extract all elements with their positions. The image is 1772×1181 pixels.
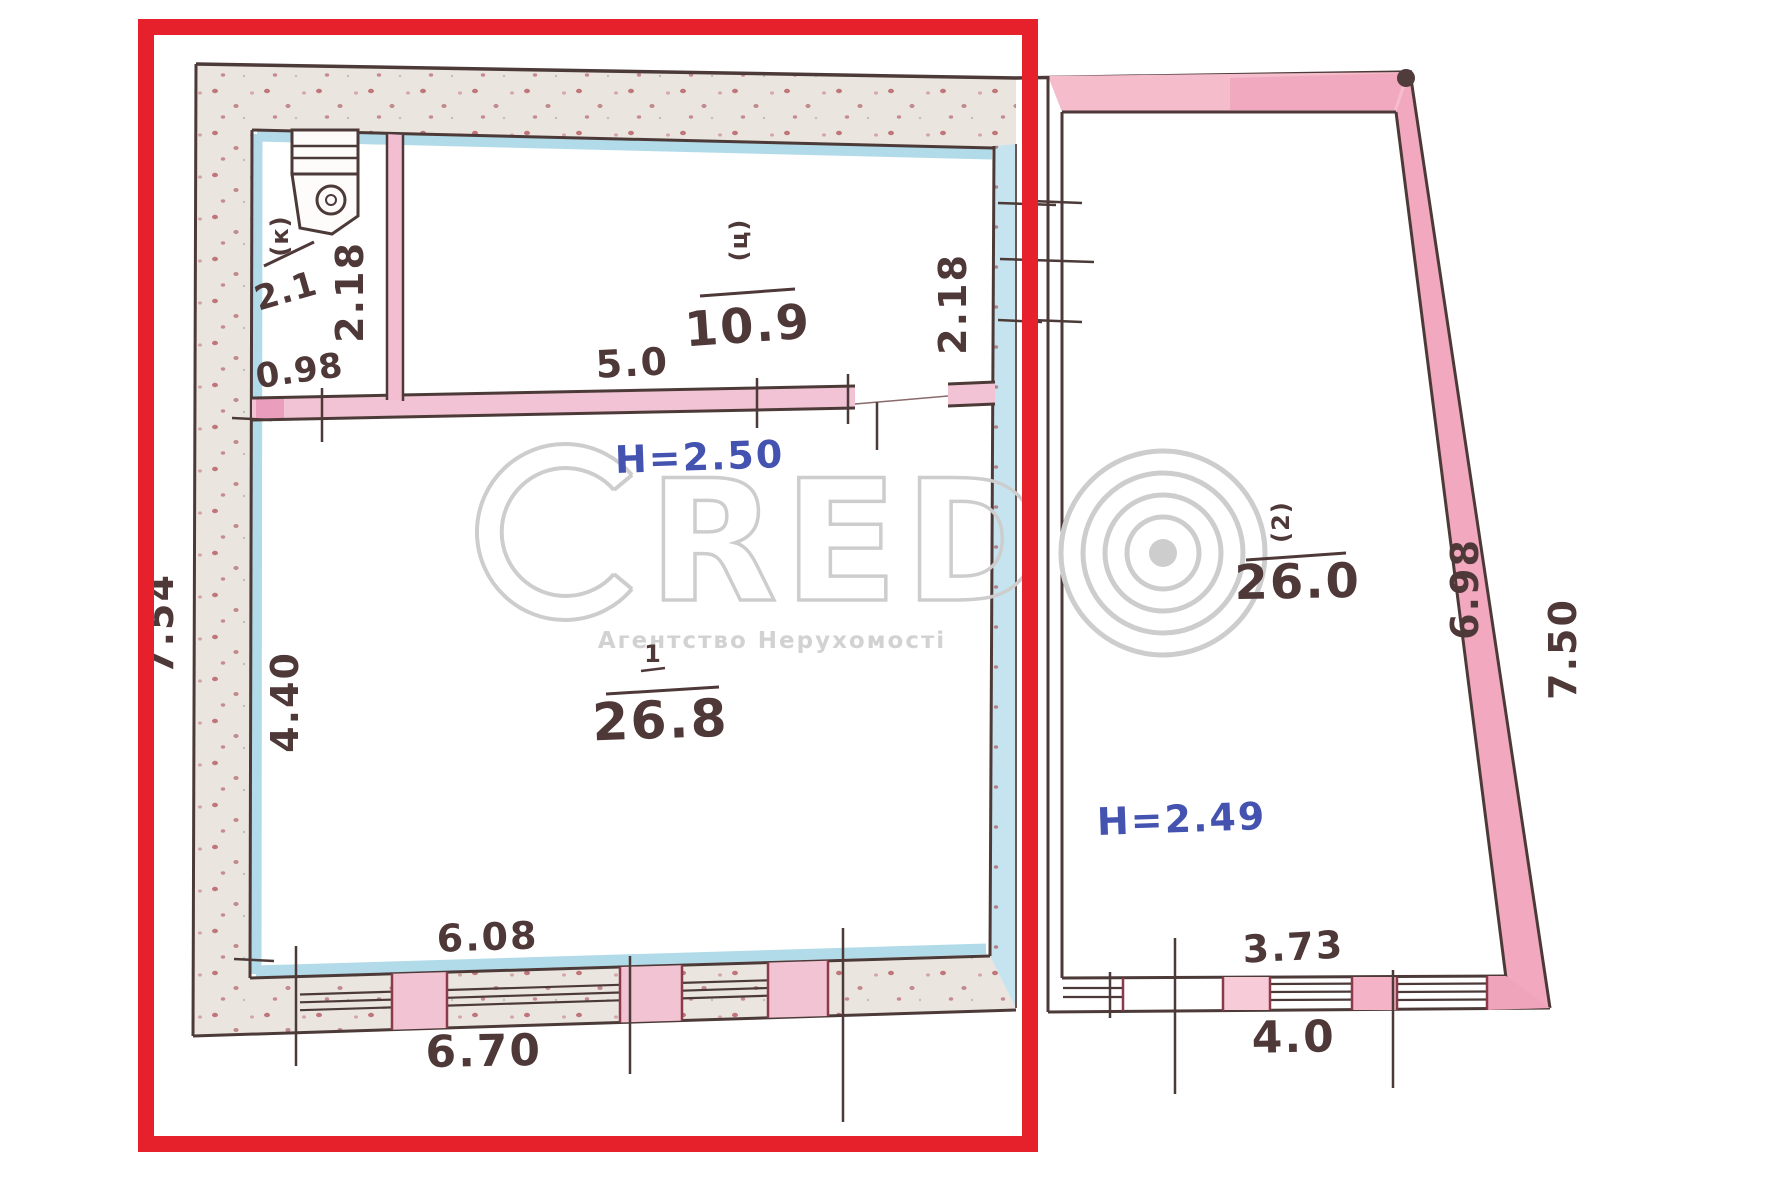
floorplan-svg: RED Агентство Нерухомості (к) 2.1 2.18 0… (0, 0, 1772, 1181)
dim-right-outer-width: 4.0 (1251, 1011, 1336, 1063)
dim-top-room-height: 2.18 (931, 253, 975, 355)
corner-blob (1397, 69, 1415, 87)
copyright-icon (1061, 451, 1265, 655)
partition-closet (386, 134, 404, 401)
left-height-note: H=2.50 (614, 432, 785, 482)
dim-main-room-height: 4.40 (263, 651, 307, 753)
dim-bottom-outer-width: 6.70 (425, 1025, 542, 1078)
top-room-marker: (ц) (725, 219, 753, 262)
right-room-area-label: 26.0 (1234, 553, 1361, 611)
scanned-floorplan-page: RED Агентство Нерухомості (к) 2.1 2.18 0… (0, 0, 1772, 1181)
window-pier (768, 961, 828, 1018)
dim-right-inner-height: 6.98 (1443, 538, 1487, 640)
top-room-area-label: 10.9 (683, 294, 813, 359)
dim-closet-height: 2.18 (328, 241, 372, 343)
right-height-note: H=2.49 (1096, 794, 1267, 844)
closet-room-marker: (к) (266, 215, 294, 256)
dim-right-window-width: 3.73 (1241, 922, 1345, 971)
main-room-area-label: 26.8 (591, 689, 729, 754)
window-pier (392, 972, 447, 1030)
main-room-marker-underline (641, 668, 665, 671)
right-bottom-windows (1063, 976, 1550, 1011)
dim-bottom-inner-width: 6.08 (436, 913, 539, 961)
right-room-marker: (2) (1267, 501, 1295, 543)
partition-horizontal (252, 382, 995, 420)
right-top-wall-dark-patch (1230, 73, 1406, 110)
main-room-marker: 1 (644, 640, 662, 668)
watermark: RED Агентство Нерухомості (477, 444, 1265, 655)
dim-right-outer-height: 7.50 (1541, 598, 1585, 700)
dim-top-room-width: 5.0 (595, 339, 671, 387)
watermark-letter-c (477, 444, 632, 620)
dim-closet-width: 0.98 (253, 345, 346, 397)
boiler-icon (292, 130, 358, 234)
